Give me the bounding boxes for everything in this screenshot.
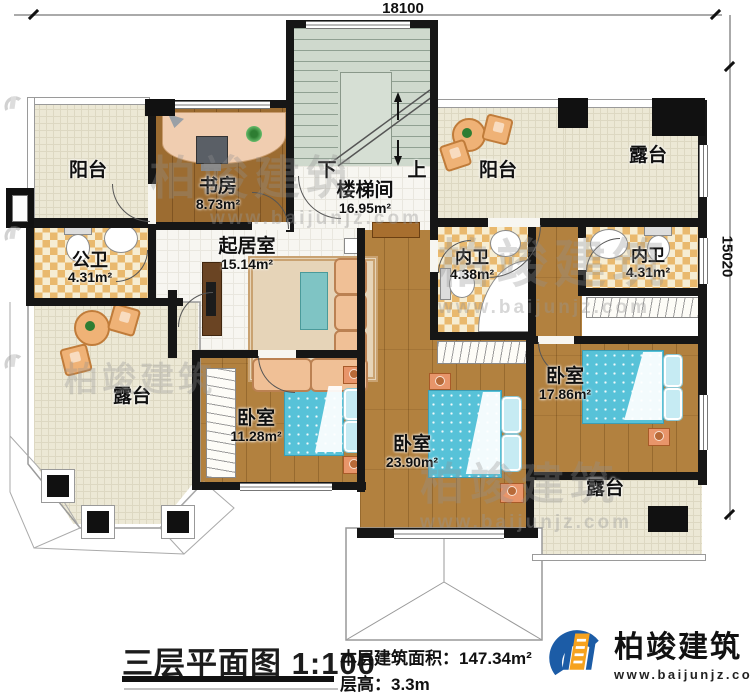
room-label-balcony-tl: 阳台 (48, 160, 128, 181)
room-label-public-bath: 公卫4.31m² (44, 250, 136, 286)
room-label-balcony-tr: 阳台 (458, 160, 538, 181)
room-label-bath-right: 内卫4.31m² (602, 246, 694, 281)
computer-monitor (196, 136, 228, 164)
room-label-study: 书房8.73m² (168, 176, 268, 213)
pillow (502, 435, 521, 471)
watermark-logo-icon (2, 350, 24, 374)
wall (30, 218, 150, 228)
brand-block: 柏竣建筑 www.baijunjz.com (548, 626, 750, 688)
watermark-logo-icon (2, 222, 24, 246)
stair-treads (294, 28, 430, 70)
closet (586, 297, 701, 318)
pillar (145, 99, 175, 116)
window (166, 101, 270, 109)
brand-website: www.baijunjz.com (614, 667, 750, 682)
brand-logo-icon (548, 626, 606, 688)
table-plant (85, 321, 95, 331)
roof-outline (340, 524, 550, 649)
pillar (558, 98, 588, 128)
window (394, 529, 504, 539)
room-label-terrace-bl: 露台 (92, 386, 172, 407)
balcony-rail (30, 97, 150, 105)
terrace-pillar (82, 506, 114, 538)
room-label-bath-left: 内卫4.38m² (426, 248, 518, 283)
brand-name: 柏竣建筑 (614, 633, 750, 663)
closet (437, 341, 531, 364)
window (306, 21, 410, 29)
keyboard (201, 164, 221, 171)
dim-width-label: 18100 (368, 0, 438, 17)
terrace-pillar (162, 506, 194, 538)
wall-unit (500, 483, 524, 503)
room-label-terrace-br: 露台 (565, 478, 645, 499)
wall (192, 350, 200, 490)
wall (26, 218, 34, 306)
wall (168, 290, 177, 358)
coffee-table (300, 272, 328, 330)
window (240, 483, 332, 491)
sink (104, 224, 138, 253)
room-label-living: 起居室15.14m² (188, 236, 306, 273)
room-label-bedroom2: 卧室23.90m² (352, 434, 472, 471)
stair-break-line (330, 78, 438, 168)
door-leaf (372, 222, 420, 238)
pillow (664, 388, 682, 420)
plant (246, 126, 262, 142)
between-baths-floor (532, 226, 582, 338)
dim-height-label: 15020 (718, 236, 735, 278)
wall (578, 288, 706, 296)
pillar (652, 98, 705, 136)
door-gap (578, 238, 586, 270)
wall (286, 20, 294, 232)
terrace-rail (532, 554, 706, 561)
floorplan-canvas: 18100 15020 (0, 0, 750, 700)
terrace-pillar (42, 470, 74, 502)
room-label-bedroom3: 卧室17.86m² (505, 366, 625, 403)
room-label-bedroom1: 卧室11.28m² (200, 408, 312, 445)
pillar (648, 506, 688, 532)
floor-area-text: 本层建筑面积：147.34m² (340, 644, 532, 669)
pillow (664, 355, 682, 387)
watermark-logo-icon (2, 92, 24, 116)
floor-height-text: 层高：3.3m (340, 670, 430, 695)
wall (26, 298, 183, 306)
window (699, 238, 708, 284)
stair-up-label: 上 (402, 160, 432, 181)
wall (430, 20, 438, 234)
wall-unit (429, 373, 451, 390)
wall-bay-window (12, 195, 28, 222)
table-plant (462, 128, 472, 138)
room-label-stairwell: 楼梯间16.95m² (300, 180, 430, 217)
room-label-terrace-tr: 露台 (608, 145, 688, 166)
title-underline-shadow (124, 688, 338, 690)
window (699, 145, 708, 197)
title-underline (122, 676, 334, 682)
window (699, 395, 708, 450)
stair-down-label: 下 (312, 160, 342, 181)
wall-unit (648, 428, 670, 446)
wall (430, 332, 536, 340)
wall (437, 218, 705, 227)
